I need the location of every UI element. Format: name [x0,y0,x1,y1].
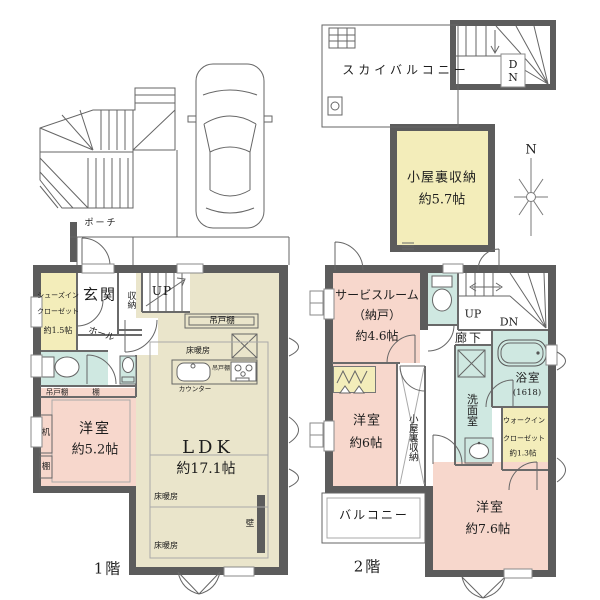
bathtub [498,340,546,366]
exterior-stairs [40,88,175,208]
f2-toilet-fixture [432,276,452,311]
f1-toilet-fixture [42,357,79,377]
label-compass-n: N [525,144,536,157]
label-wall-note: 壁 [246,520,255,529]
label-hanging-cupboard-stove: 吊戸棚 [212,366,230,372]
label-sky-balcony: スカイバルコニー [342,64,470,76]
attic-hatch [402,243,414,249]
label-shoes-closet-3: 約1.5帖 [44,327,73,335]
label-corridor: 廊下 [455,332,483,344]
label-wic-3: 約1.3帖 [510,449,537,457]
label-wic-1: ウォークイン [503,418,545,425]
compass-icon [514,158,548,236]
label-sky-dn: DN [508,58,519,84]
label-attic-name: 小屋裏収納 [407,172,477,185]
sky-stairs-treads [456,26,548,87]
label-shelf-side: 棚 [42,463,51,472]
label-floor1: 1階 [94,562,123,577]
label-storage-f1: 収納 [126,291,135,309]
label-attic-access: 小屋裏収納 [407,414,417,462]
label-service-2: （納戸） [353,309,401,321]
label-balcony: バルコニー [339,509,409,521]
label-bath-size: (1618) [513,389,541,398]
label-western-6-size: 約6帖 [350,437,383,450]
label-wic-2: クローゼット [503,436,545,443]
label-western-7-6-size: 約7.6帖 [466,523,511,536]
hanger-icons [337,371,367,393]
washroom-sink [465,438,493,463]
label-ldk-size: 約17.1帖 [176,462,235,476]
label-shoes-closet-1: シューズイン [37,293,79,300]
label-desk: 机 [42,429,51,438]
label-shoes-closet-2: クローゼット [37,309,79,316]
label-floor-heating-3: 床暖房 [154,542,178,550]
label-bath-name: 浴室 [516,372,541,384]
label-floor-heating-2: 床暖房 [154,493,178,501]
label-service-1: サービスルーム [335,289,419,301]
floor-plan-canvas: ポーチ スカイバルコニー DN 小屋裏収納 約5.7帖 N シューズイン クロー… [0,0,600,600]
label-western-5-2-size: 約5.2帖 [72,444,119,457]
label-washroom: 洗面室 [467,394,478,427]
label-ldk-name: LDK [182,439,234,457]
car-outline [188,64,272,228]
label-dn-f2: DN [500,317,518,328]
label-porch: ポーチ [84,220,117,229]
f1-hall-sink [120,356,136,384]
label-western-7-6-name: 洋室 [476,502,504,515]
washing-machine [458,350,485,377]
f1-western-furniture [40,400,130,482]
label-western-6-name: 洋室 [353,415,381,428]
label-up-f2: UP [465,309,482,320]
label-floor2: 2階 [354,560,383,575]
label-counter: カウンター [179,386,212,393]
label-entrance: 玄関 [83,288,117,303]
label-floor-heating-1: 床暖房 [186,347,210,355]
label-western-5-2-name: 洋室 [79,422,111,436]
label-hanging-cupboard-kitchen: 吊戸棚 [209,317,235,326]
label-hanging-cupboard-west: 吊戸棚 [46,388,69,396]
label-shelf-top: 棚 [92,388,100,396]
label-attic-size: 約5.7帖 [419,194,466,207]
label-service-3: 約4.6帖 [355,330,398,342]
label-up-f1: UP [152,285,172,297]
